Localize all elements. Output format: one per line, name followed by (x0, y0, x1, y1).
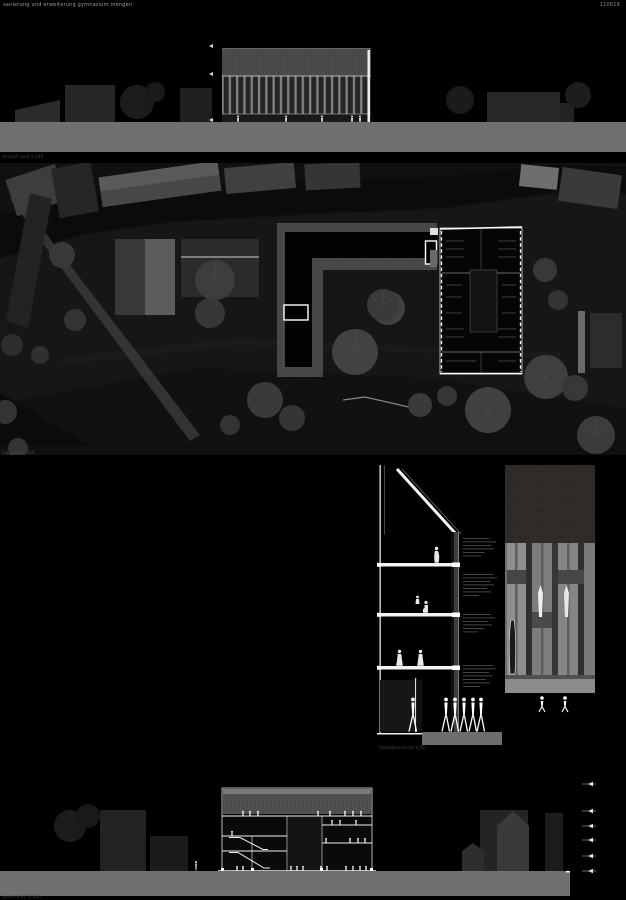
sheet-number: 110618 (600, 2, 620, 8)
figure-silhouette-dark (509, 620, 515, 674)
floor-slab (380, 613, 452, 617)
render-figures (539, 696, 568, 712)
entrance-opening-west (284, 305, 308, 320)
ground-band-bottom (0, 871, 570, 896)
ground-band-section (422, 732, 502, 745)
cross-section-drawing (0, 778, 626, 900)
ground-band-top (0, 122, 626, 152)
level-markers-right (582, 782, 596, 873)
presentation-board: sanierung und erweiterung gymnasium meng… (0, 0, 626, 900)
context-buildings-left (15, 82, 212, 122)
facade-section-drawing (377, 462, 502, 754)
brick-wall (505, 465, 595, 543)
roof-band (223, 794, 371, 814)
glass-facade (505, 543, 595, 675)
floor-slab (380, 666, 452, 670)
elevation-label: ansicht nord 1:200 (2, 154, 43, 159)
site-plan-drawing (0, 163, 626, 455)
ground-strip (505, 679, 595, 693)
context-left (54, 804, 197, 871)
school-elevation (209, 44, 371, 122)
annotation-leaders (463, 538, 497, 687)
roof-slope (397, 469, 456, 534)
facade-section-label: fassadenschnitt 1:50 (379, 745, 425, 750)
floor-slab (380, 563, 452, 567)
basement (380, 678, 422, 732)
facade-rendering (503, 462, 598, 714)
section-building (218, 788, 376, 872)
board-title: sanierung und erweiterung gymnasium meng… (3, 2, 132, 8)
site-plan-label: lageplan 1:500 (2, 450, 35, 455)
floor-plan-detail (440, 227, 522, 374)
context-right (462, 810, 563, 871)
elevation-north-drawing (0, 40, 626, 155)
cross-section-label: querschnitt 1:200 (2, 894, 41, 899)
context-buildings-right (446, 82, 591, 122)
